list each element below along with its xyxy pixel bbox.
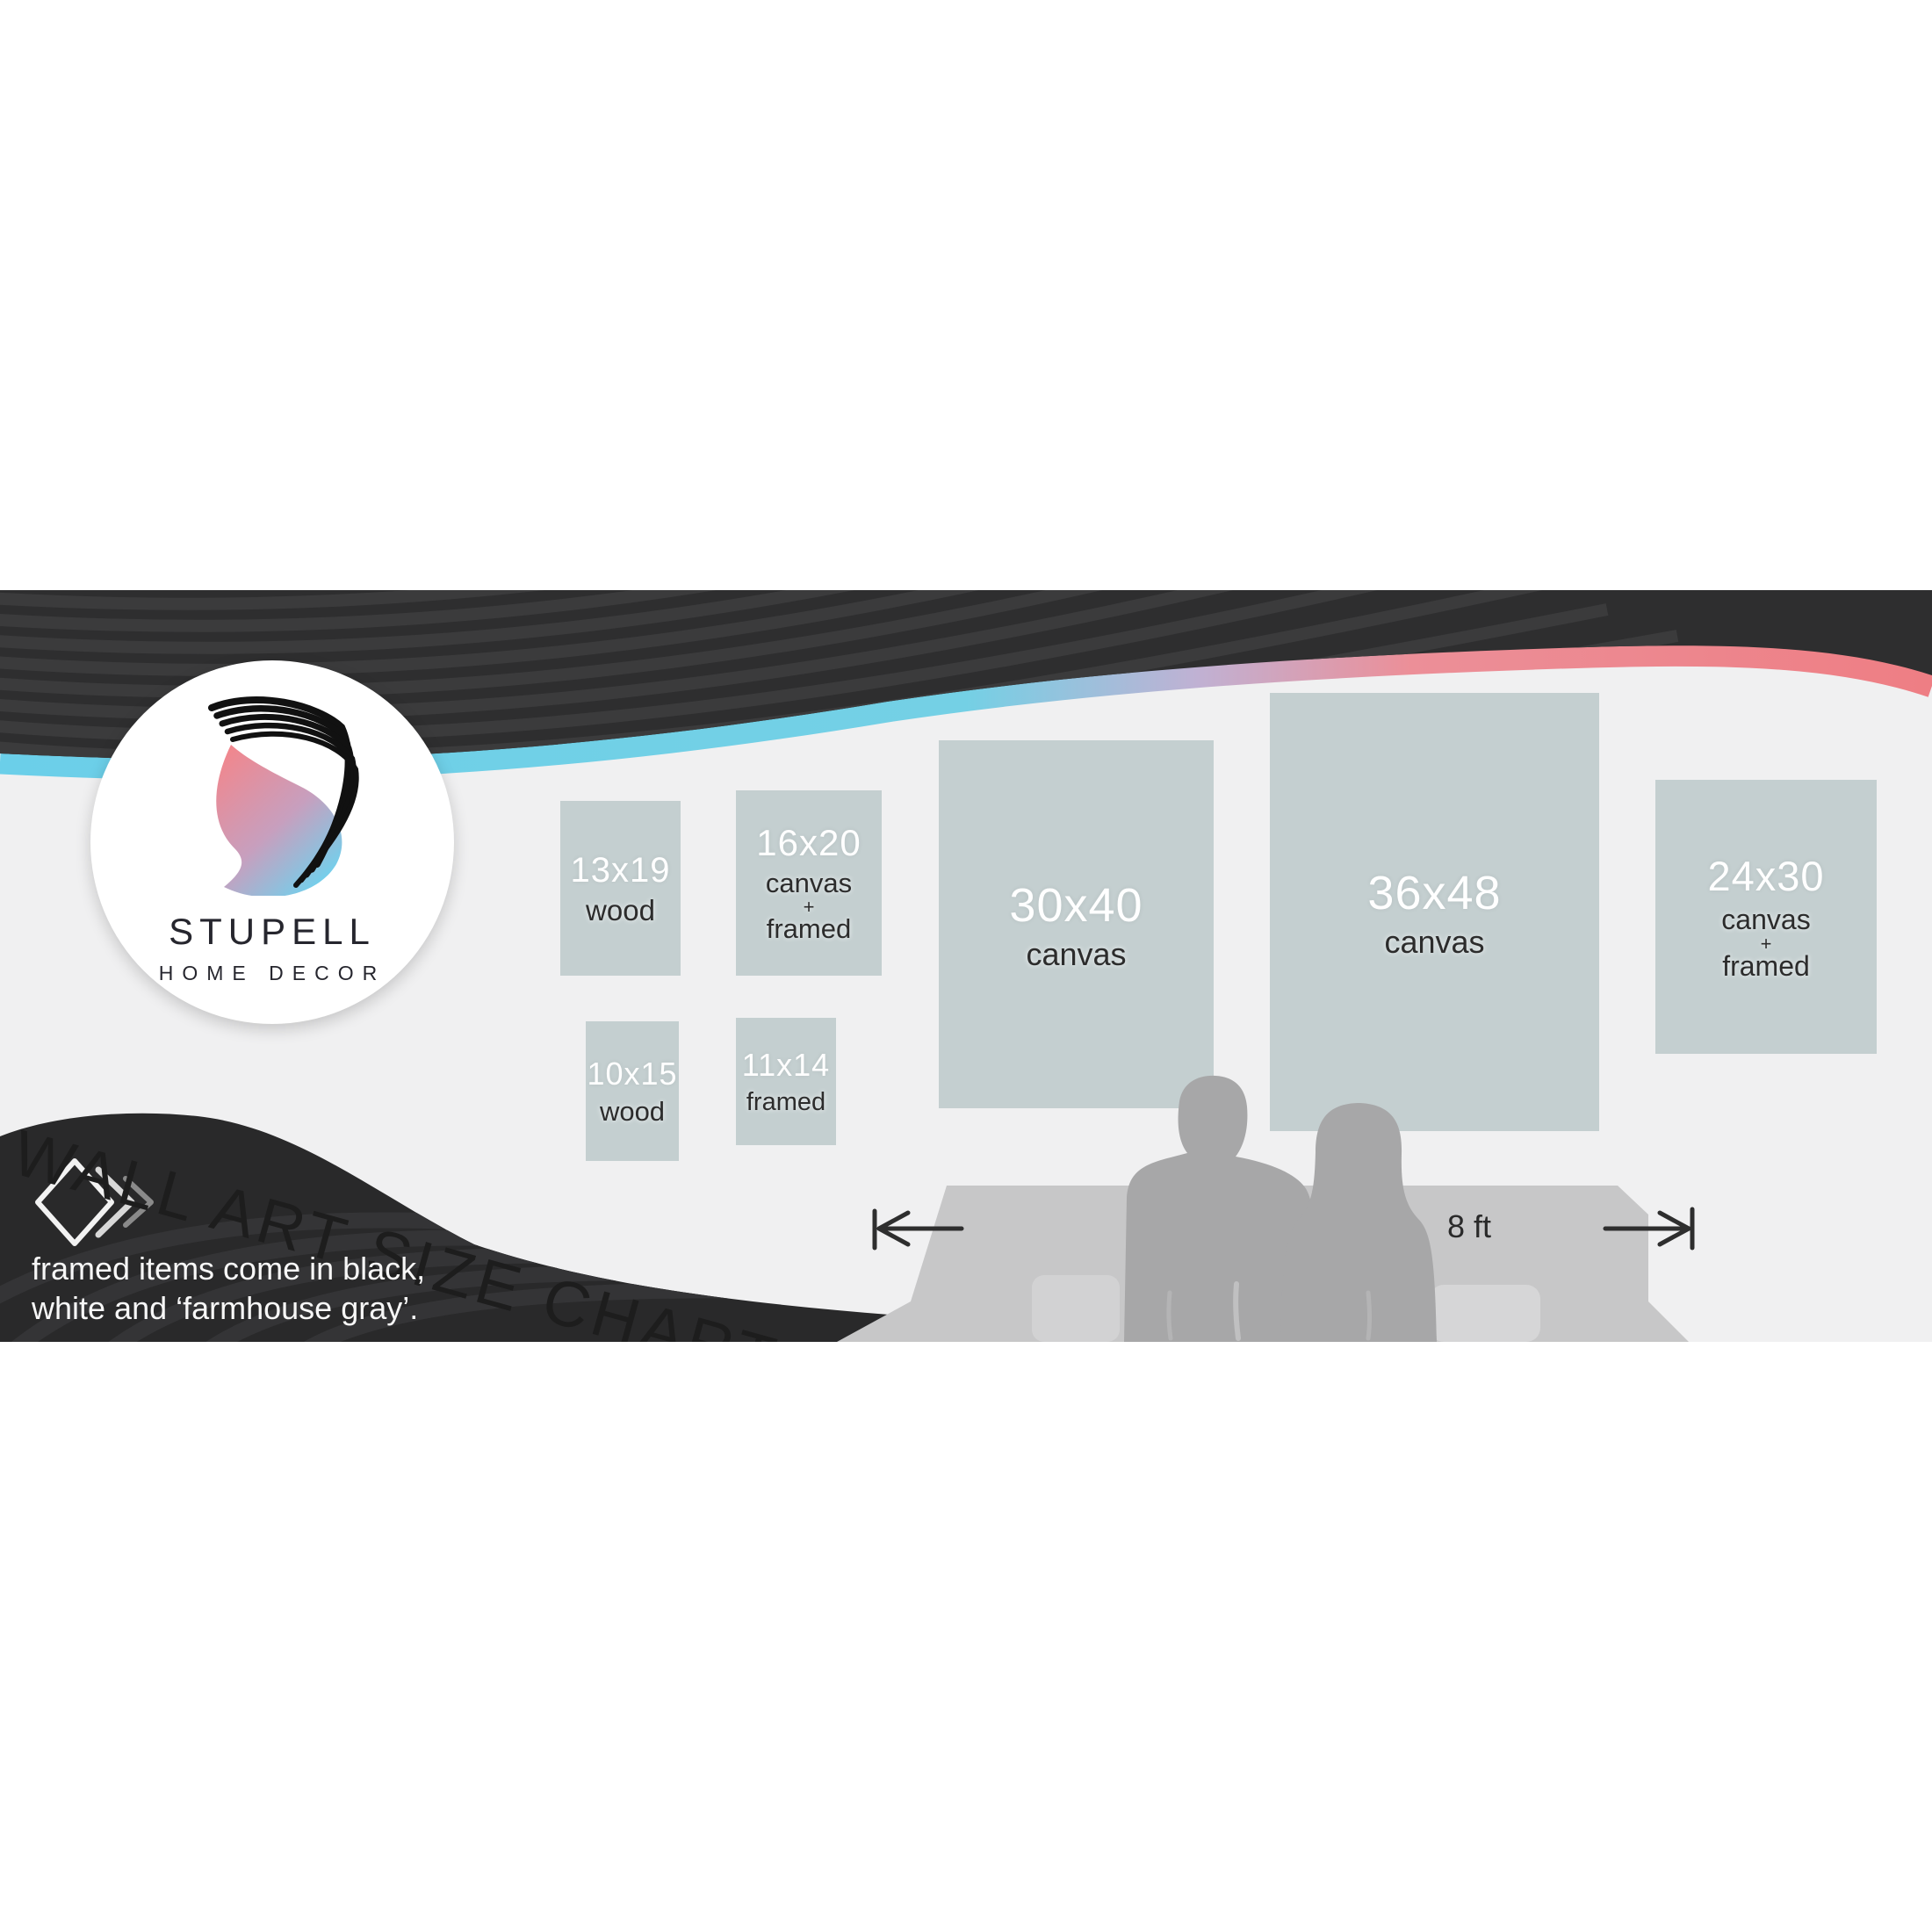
brand-logo: STUPELL HOME DECOR bbox=[90, 660, 454, 1024]
size-chart-banner: 13x19 wood 16x20 canvas+framed 10x15 woo… bbox=[0, 590, 1932, 1342]
framed-colors-note-line1: framed items come in black, bbox=[32, 1249, 425, 1288]
framed-colors-note-line2: white and ‘farmhouse gray’. bbox=[32, 1288, 425, 1328]
people-silhouettes bbox=[1124, 1076, 1437, 1342]
page: { "brand": { "name": "STUPELL", "tagline… bbox=[0, 0, 1932, 1932]
framed-colors-note: framed items come in black, white and ‘f… bbox=[32, 1249, 425, 1329]
woman-silhouette bbox=[1280, 1103, 1437, 1342]
distance-label: 8 ft bbox=[1430, 1208, 1509, 1245]
brand-tagline: HOME DECOR bbox=[90, 962, 454, 985]
brand-name: STUPELL bbox=[90, 911, 454, 953]
brand-s-icon bbox=[185, 692, 366, 896]
